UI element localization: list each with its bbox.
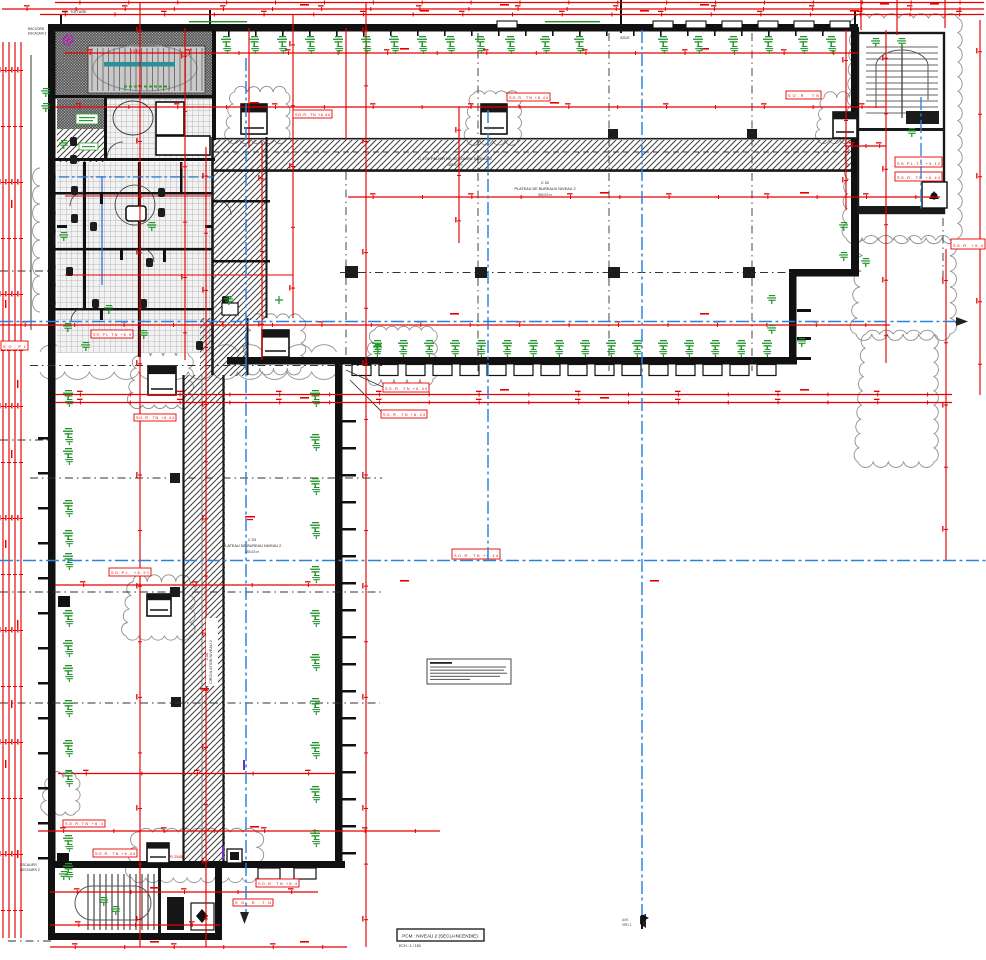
- svg-text:SO.R. +6.4: SO.R. +6.4: [953, 244, 983, 248]
- svg-text:SO.R. TN +6.44: SO.R. TN +6.44: [383, 413, 425, 417]
- svg-text:ISSUE: ISSUE: [620, 36, 630, 40]
- svg-text:SO.R. TN +6.4: SO.R. TN +6.4: [258, 882, 297, 886]
- svg-text:385.63 m: 385.63 m: [245, 550, 260, 554]
- svg-text:SO.PL.TN +8.9: SO.PL.TN +8.9: [93, 333, 131, 337]
- svg-text:ECH : 1 / 150: ECH : 1 / 150: [399, 944, 421, 948]
- svg-text:SECOURS 2: SECOURS 2: [20, 868, 40, 872]
- svg-text:1 540: 1 540: [130, 49, 140, 53]
- svg-text:SO.PL. +8.91: SO.PL. +8.91: [111, 571, 149, 575]
- svg-text:C 2.01 PALIER DE SECOURS NIVEA: C 2.01 PALIER DE SECOURS NIVEAU 2: [418, 156, 493, 161]
- svg-text:VRD 2: VRD 2: [622, 923, 632, 927]
- svg-text:CIRCULATION NIVEAU 2: CIRCULATION NIVEAU 2: [209, 640, 213, 684]
- svg-text:PLATEAU DE BUREAU NIVEAU 2: PLATEAU DE BUREAU NIVEAU 2: [223, 544, 282, 548]
- svg-text:AXE: AXE: [622, 918, 628, 922]
- svg-text:385.63 m: 385.63 m: [538, 193, 553, 197]
- svg-text:ESCALIER: ESCALIER: [20, 863, 37, 867]
- svg-text:C 03: C 03: [248, 538, 256, 542]
- svg-text:SO.R. TN +6.44: SO.R. TN +6.44: [95, 852, 135, 856]
- svg-text:SO.R. TN +6.44: SO.R. TN +6.44: [897, 176, 940, 180]
- svg-text:SO.R. TN +6.44: SO.R. TN +6.44: [136, 416, 174, 420]
- svg-text:ESCALIER 2: ESCALIER 2: [28, 32, 47, 36]
- svg-text:SO.R. TN +6.44: SO.R. TN +6.44: [509, 96, 548, 100]
- svg-text:SO.R. TN +6.44: SO.R. TN +6.44: [385, 387, 427, 391]
- svg-text:C 02: C 02: [541, 180, 550, 185]
- svg-text:RACCORD: RACCORD: [28, 27, 45, 31]
- svg-text:2.80: 2.80: [205, 653, 209, 660]
- svg-text:PCM : NIVEAU 2 (SECU-INCENDIE): PCM : NIVEAU 2 (SECU-INCENDIE): [402, 934, 478, 939]
- svg-text:385.63 m: 385.63 m: [448, 163, 463, 167]
- svg-text:PLATEAU DE BUREAUX NIVEAU 2: PLATEAU DE BUREAUX NIVEAU 2: [514, 187, 575, 191]
- svg-text:R.2565: R.2565: [170, 854, 184, 859]
- svg-text:SO.R. TN +6.44: SO.R. TN +6.44: [295, 113, 330, 117]
- svg-text:NIV. TOITURE: NIV. TOITURE: [62, 10, 87, 14]
